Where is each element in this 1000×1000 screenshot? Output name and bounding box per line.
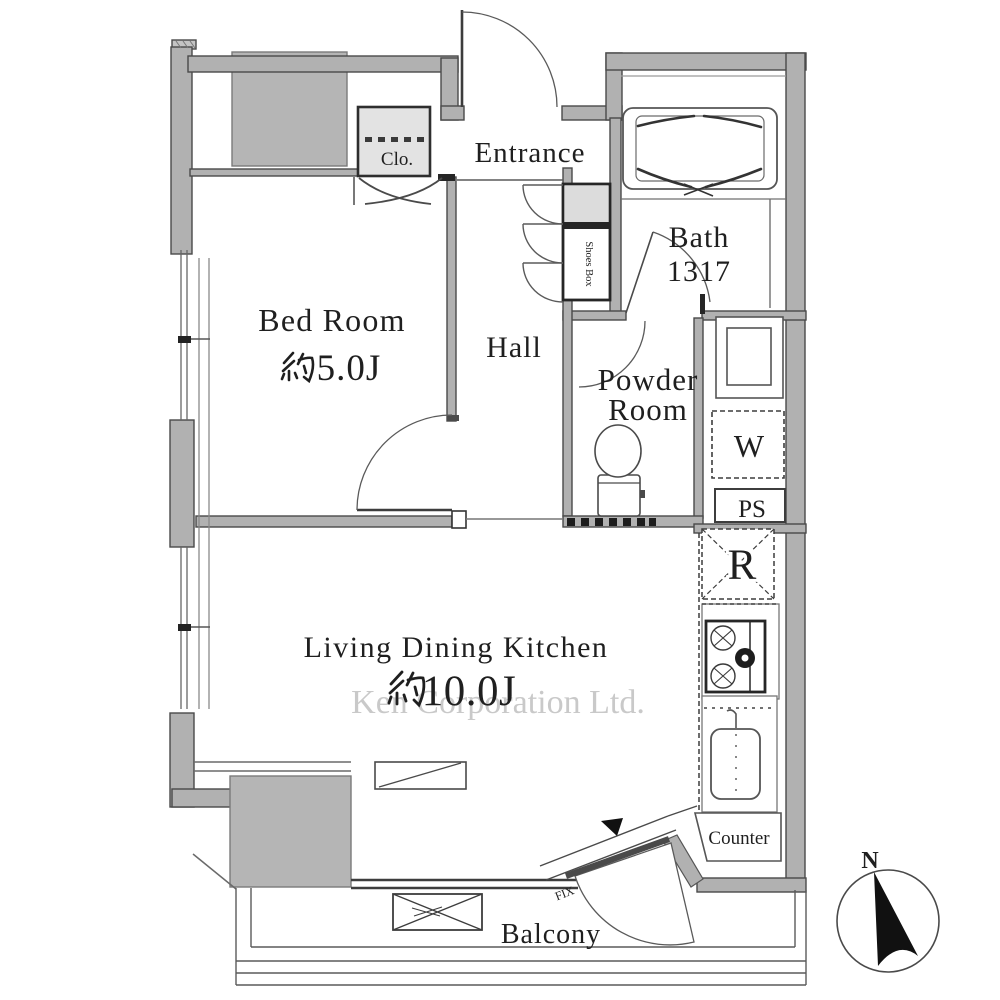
svg-text:Entrance: Entrance xyxy=(474,137,585,169)
svg-text:5.0J: 5.0J xyxy=(317,348,382,389)
svg-text:W: W xyxy=(734,428,765,464)
svg-text:N: N xyxy=(861,848,879,874)
svg-text:Shoes Box: Shoes Box xyxy=(583,241,594,287)
svg-text:R: R xyxy=(728,542,757,589)
svg-text:Clo.: Clo. xyxy=(381,149,413,170)
svg-text:1317: 1317 xyxy=(667,255,731,288)
svg-text:Living Dining Kitchen: Living Dining Kitchen xyxy=(304,631,609,664)
svg-text:PS: PS xyxy=(738,496,766,523)
svg-text:Bath: Bath xyxy=(669,221,730,254)
svg-text:Bed Room: Bed Room xyxy=(258,302,405,338)
svg-text:Balcony: Balcony xyxy=(501,919,601,950)
svg-text:10.0J: 10.0J xyxy=(422,668,516,715)
svg-text:Room: Room xyxy=(608,392,688,427)
svg-text:Counter: Counter xyxy=(708,828,770,849)
svg-text:Hall: Hall xyxy=(486,331,542,364)
